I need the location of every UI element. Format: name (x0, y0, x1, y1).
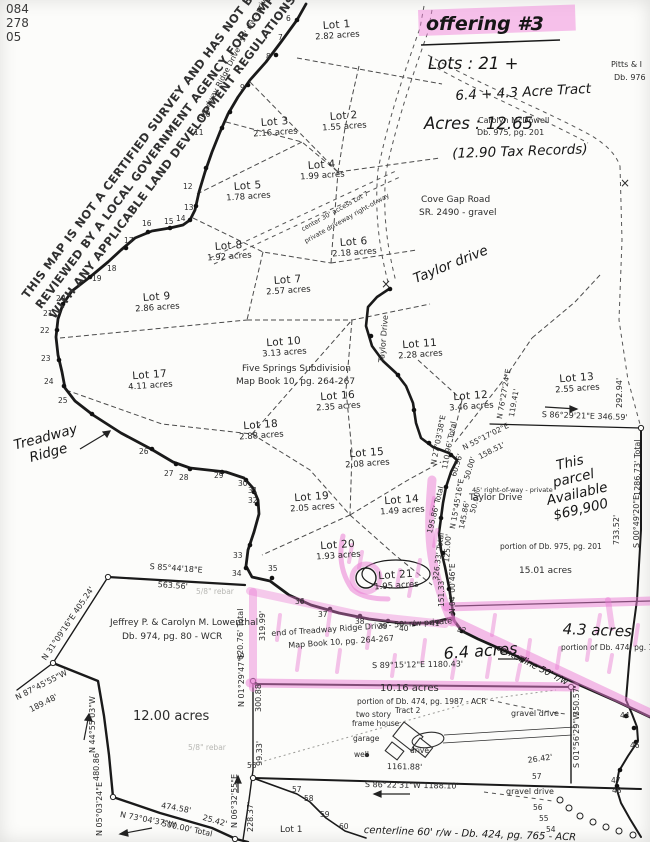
bearing-label: 300.88' (254, 682, 263, 712)
lot-label: Lot 141.49 acres (379, 492, 425, 517)
title-underline (421, 40, 560, 45)
lot-label-21-circled: Lot 211.95 acres (373, 567, 419, 592)
lot-label: Lot 132.55 acres (554, 370, 600, 395)
station-number: 56 (247, 761, 257, 770)
lot-label: Lot 12.82 acres (314, 17, 360, 42)
station-number: 48 (612, 786, 622, 795)
well-label: well (354, 750, 369, 759)
station-number: 32 (248, 496, 258, 505)
station-number: 19 (92, 274, 102, 283)
station-number: 16 (142, 219, 152, 228)
station-number: 31 (248, 486, 258, 495)
lot-label: Lot 192.05 acres (289, 489, 335, 514)
bearing-label: N 01°29'47"E (237, 653, 246, 707)
subdivision-book: Map Book 10, pg. 264-267 (236, 377, 355, 387)
station-number: 55 (539, 814, 549, 823)
station-number: 30 (238, 479, 248, 488)
owner-pitts: Pitts & I (611, 60, 642, 69)
station-number: 14 (176, 214, 186, 223)
station-number: 56 (533, 803, 543, 812)
lot-label: Lot 81.92 acres (206, 238, 252, 263)
house-label-2: frame house (352, 719, 399, 728)
subdivision-name: Five Springs Subdivision (242, 364, 351, 374)
parcel-12-acres: 12.00 acres (133, 709, 209, 724)
lot-label: Lot 123.46 acres (448, 388, 494, 413)
station-number: 29 (214, 471, 224, 480)
station-number: 24 (44, 377, 54, 386)
lot-label: Lot 21.55 acres (321, 108, 367, 133)
station-number: 60 (339, 822, 349, 831)
bearing-label: N 04°00'46"E (448, 563, 457, 614)
survey-cross-mark: × (381, 277, 391, 291)
cove-gap-road-label: Cove Gap Road (421, 195, 490, 205)
bearing-label: 319.99' (258, 611, 267, 641)
rebar-note: 5/8" rebar (188, 743, 226, 752)
station-number: 47 (611, 776, 621, 785)
lot-label: Lot 162.35 acres (315, 388, 361, 413)
station-number: 7 (278, 33, 283, 42)
lot-label: Lot 92.86 acres (134, 289, 180, 314)
house-label-1: two story (356, 710, 391, 719)
bearing-label: N 06°32'55"E (230, 774, 239, 828)
gravel-drive-label: gravel drive (506, 787, 554, 796)
station-number: 58 (304, 794, 314, 803)
station-number: 6 (286, 14, 291, 23)
station-number: 8 (266, 52, 271, 61)
corner-id-line: 084 (6, 2, 29, 16)
station-number: 44 (620, 711, 630, 720)
owner-mcdowell: Carolyn McDowell (478, 116, 549, 125)
station-number: 22 (40, 326, 50, 335)
lot-label: Lot 32.16 acres (252, 114, 298, 139)
station-number: 23 (41, 354, 51, 363)
station-number: 18 (107, 264, 117, 273)
owner-mcdowell-deed: Db. 975, pg. 201 (477, 128, 544, 137)
survey-cross-mark: × (620, 176, 630, 190)
lot-label: Lot 51.78 acres (225, 178, 271, 203)
station-number: 26 (139, 447, 149, 456)
station-number: 27 (164, 469, 174, 478)
corner-id-line: 278 (6, 16, 29, 30)
lot1-south-label: Lot 1 (280, 825, 302, 835)
station-number: 13 (184, 203, 194, 212)
lot-label: Lot 72.57 acres (265, 272, 311, 297)
station-number: 42 (457, 626, 467, 635)
bearing-label: S 89°15'12"E 1180.43' (372, 659, 463, 670)
bearing-label: S 01°56'29"W (572, 712, 581, 768)
station-number: 11 (194, 128, 204, 137)
lot-label: Lot 182.88 acres (238, 417, 284, 442)
bearing-label: N 44°55'03"W (88, 696, 97, 753)
station-number: 15 (164, 217, 174, 226)
drive-label: drive (410, 746, 429, 755)
parcel-43-note: portion of Db. 474, pg. 150 (561, 643, 650, 652)
station-number: 59 (320, 810, 330, 819)
lot-label: Lot 103.13 acres (261, 334, 307, 359)
station-number: 34 (232, 569, 242, 578)
station-number: 28 (179, 473, 189, 482)
plat-map-scan: 084 278 05 THIS MAP IS NOT A CERTIFIED S… (0, 0, 650, 842)
parcel-1501-note: portion of Db. 975, pg. 201 (500, 542, 602, 551)
station-number: 39 (378, 622, 388, 631)
station-number: 40 (399, 624, 409, 633)
rebar-note: 5/8" rebar (196, 587, 234, 596)
station-number: 35 (268, 564, 278, 573)
station-number: 57 (532, 772, 542, 781)
garage-label: garage (353, 734, 379, 743)
lot-label: Lot 174.11 acres (127, 367, 173, 392)
station-number: 25 (58, 396, 68, 405)
lot-label: Lot 41.99 acres (299, 157, 345, 182)
lot-label: Lot 152.08 acres (344, 445, 390, 470)
offering-title: offering #3 (426, 13, 544, 35)
lot-label: Lot 201.93 acres (315, 537, 361, 562)
station-number: 38 (355, 617, 365, 626)
station-number: 17 (124, 236, 134, 245)
bearing-label: 228.37' (246, 802, 255, 832)
bearing-label: 292.94' (615, 378, 624, 408)
gravel-drive-label: gravel drive (511, 709, 559, 718)
parcel-1501-acres: 15.01 acres (519, 566, 572, 576)
bearing-label: 1286.73' Total (633, 439, 642, 496)
owner-pitts-deed: Db. 976 (614, 73, 646, 82)
station-number: 21 (43, 309, 53, 318)
bearing-label: S 86°22'31"W 1188.10' (365, 780, 459, 791)
bearing-label: S 00°49'20"E (632, 495, 641, 548)
owner-lowenthal-deed: Db. 974, pg. 80 - WCR (122, 632, 222, 642)
bearing-label: N 05°03'24"E (95, 782, 104, 836)
bearing-label: 1161.88' (387, 762, 422, 772)
cove-gap-road-sr: SR. 2490 - gravel (419, 208, 497, 218)
bearing-label: 480.86' (92, 751, 101, 781)
lot-label: Lot 112.28 acres (397, 336, 443, 361)
parcel-1016-note: portion of Db. 474, pg. 1987 - ACR (357, 697, 486, 706)
parcel-1016-acres: 10.16 acres (380, 683, 439, 694)
parcel-1016-tract: Tract 2 (395, 706, 420, 715)
station-number: 37 (318, 610, 328, 619)
station-number: 36 (295, 597, 305, 606)
station-number: 9 (240, 83, 245, 92)
station-number: 54 (546, 825, 556, 834)
station-number: 46 (630, 741, 640, 750)
parcel-43-acres: 4.3 acres (562, 620, 632, 640)
corner-id: 084 278 05 (6, 2, 29, 44)
station-number: 10 (201, 110, 211, 119)
bearing-label: 733.52' (612, 515, 621, 545)
lot-label: Lot 62.18 acres (331, 234, 377, 259)
station-number: 57 (292, 785, 302, 794)
corner-id-line: 05 (6, 30, 29, 44)
station-number: 41 (430, 619, 440, 628)
bearing-label: 151.33' (437, 579, 446, 607)
station-number: 12 (183, 182, 193, 191)
station-number: 20 (56, 294, 66, 303)
offering-lots: Lots : 21 + (428, 54, 518, 73)
station-number: 33 (233, 551, 243, 560)
